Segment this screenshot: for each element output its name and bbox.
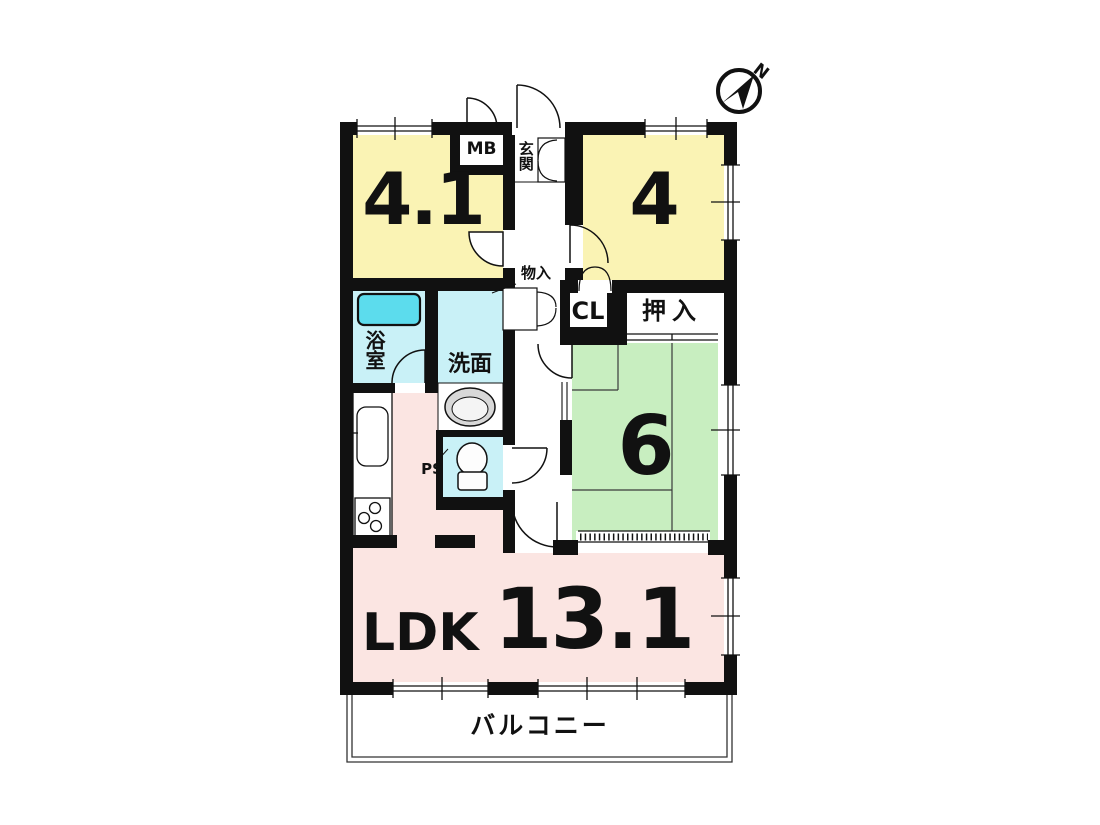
oshiire-sliding-door [627, 334, 718, 340]
cl-label: CL [568, 299, 608, 323]
shoe-cabinet [538, 138, 565, 182]
bath-label: 浴室 [363, 330, 384, 370]
toilet-bowl [457, 443, 487, 475]
tatami-west-sliding [562, 382, 567, 420]
floor-plan-drawing: N [0, 0, 1100, 825]
ldk-size-label: 13.1 [494, 577, 693, 661]
toilet-tank [458, 472, 487, 490]
compass: N [718, 59, 773, 112]
mb-label: MB [459, 141, 504, 158]
wash-basin-bowl [452, 397, 488, 421]
ldk-door [512, 502, 557, 547]
toilet-door [503, 445, 547, 490]
compass-needle-icon [722, 75, 754, 109]
washroom-label: 洗面 [436, 354, 504, 376]
kitchen-sink [357, 407, 388, 466]
stove-burner [370, 503, 381, 514]
floor-plan-page: N 4.1 4 6 LDK 13.1 バルコニー MB 玄関 物入 CL 押入 … [0, 0, 1100, 825]
tatami-room-size-label: 6 [572, 406, 718, 488]
entrance-door [512, 85, 565, 135]
compass-north-label: N [749, 59, 773, 84]
bathtub [358, 294, 420, 325]
entrance-label: 玄関 [517, 141, 533, 171]
ldk-label: LDK [362, 607, 479, 659]
stove-burner [371, 521, 382, 532]
storage-label: 物入 [514, 266, 558, 281]
room-4-size-label: 4 [583, 163, 724, 235]
stove-burner [359, 513, 370, 524]
storage-closet-box [503, 288, 537, 330]
room-4-1-size-label: 4.1 [340, 163, 506, 235]
oshiire-label: 押入 [625, 299, 719, 323]
ps-label: PS [410, 462, 454, 477]
balcony-label: バルコニー [420, 713, 660, 738]
tatami-room-door [538, 344, 572, 378]
